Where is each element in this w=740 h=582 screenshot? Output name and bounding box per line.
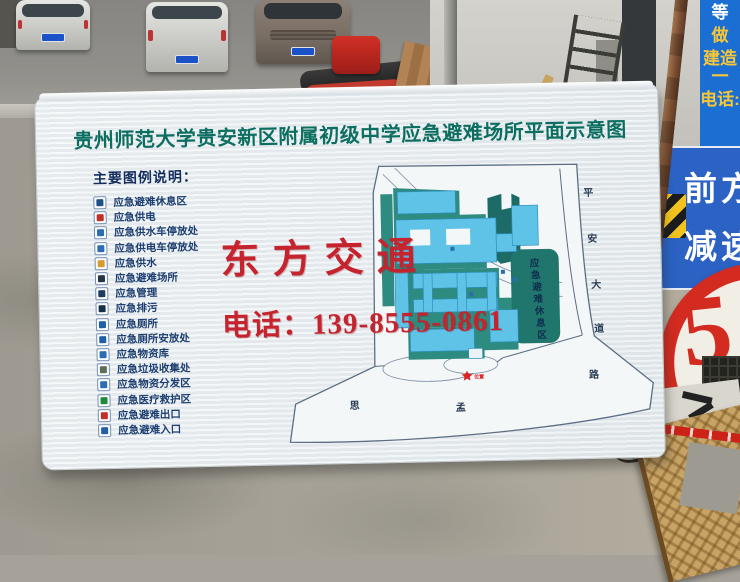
taillight-icon: [18, 20, 22, 29]
toilet-icon: [96, 318, 109, 331]
power-icon: [94, 211, 107, 224]
legend-pictogram: [100, 397, 107, 404]
faucet-icon: [95, 257, 108, 270]
legend-pictogram: [97, 245, 104, 252]
banner-text: 做: [712, 27, 729, 45]
toilet-place-icon: [96, 333, 109, 346]
medical-icon: [97, 394, 110, 407]
legend-label: 应急供水车停放处: [114, 224, 198, 241]
legend-label: 应急供电车停放处: [114, 239, 198, 256]
legend-label: 应急物资分发区: [117, 376, 191, 393]
legend-pictogram: [99, 306, 106, 313]
legend-label: 应急避难休息区: [113, 193, 187, 210]
legend-pictogram: [97, 230, 104, 237]
gate-building: [469, 348, 483, 358]
license-plate: [42, 34, 64, 41]
supplies-dist-icon: [97, 378, 110, 391]
svg-text:难: 难: [532, 293, 543, 305]
management-icon: [95, 287, 108, 300]
watermark-phone: 电话：139-8555-0861: [222, 297, 505, 345]
legend-label: 应急管理: [115, 285, 157, 301]
legend-label: 应急物资库: [116, 346, 169, 362]
watermark-company: 东方交通: [220, 224, 503, 286]
advertising-banner: 等做建造一电话:: [700, 0, 740, 154]
legend-pictogram: [96, 199, 103, 206]
legend-heading: 主要图例说明：: [93, 164, 283, 188]
legend-label: 应急避难出口: [118, 406, 181, 422]
legend-pictogram: [100, 366, 107, 373]
license-plate: [292, 48, 314, 55]
exit-icon: [98, 409, 111, 422]
road-right-char: 大: [591, 278, 601, 291]
sewage-icon: [95, 302, 108, 315]
road-right-char: 安: [587, 232, 597, 245]
banner-text: 电话:: [700, 91, 740, 109]
garbage-icon: [97, 363, 110, 376]
evacuation-map-signboard: 贵州师范大学贵安新区附属初级中学应急避难场所平面示意图 主要图例说明： 应急避难…: [34, 84, 666, 471]
legend-pictogram: [98, 290, 105, 297]
road-bottom-char: 思: [350, 400, 360, 412]
road-bottom-char: 路: [589, 368, 600, 381]
evacuation-icon: [95, 272, 108, 285]
red-watermark: 东方交通 电话：139-8555-0861: [220, 224, 504, 345]
shelter-rest-icon: [93, 196, 106, 209]
water-truck-icon: [94, 227, 107, 240]
taillight-icon: [148, 30, 153, 41]
legend-pictogram: [97, 214, 104, 221]
legend-pictogram: [98, 260, 105, 267]
svg-text:休: 休: [534, 305, 545, 317]
legend-pictogram: [99, 336, 106, 343]
legend-pictogram: [101, 427, 108, 434]
minivan-left: [16, 0, 90, 50]
svg-text:急: 急: [531, 269, 541, 281]
legend-row: 应急避难入口: [98, 419, 288, 438]
legend-label: 应急垃圾收集处: [117, 361, 191, 378]
traffic-sign-text: 前方: [684, 162, 740, 210]
entrance-icon: [98, 424, 111, 437]
legend-label: 应急排污: [115, 300, 157, 316]
legend-pictogram: [99, 321, 106, 328]
legend-label: 应急厕所安放处: [116, 330, 190, 347]
svg-text:避: 避: [532, 281, 542, 293]
supplies-store-icon: [96, 348, 109, 361]
banner-text: 建造一: [700, 50, 740, 86]
banner-text: 等: [712, 4, 729, 22]
legend-label: 应急供水: [115, 255, 157, 271]
svg-text:区: 区: [537, 330, 547, 341]
road-right-char: 道: [594, 322, 604, 335]
scooter-topbox: [332, 36, 380, 74]
legend-label: 应急避难入口: [118, 421, 181, 437]
legend-pictogram: [98, 275, 105, 282]
legend-label: 应急避难场所: [115, 270, 178, 286]
road-right-char: 平: [583, 187, 593, 199]
legend-pictogram: [101, 412, 108, 419]
legend-pictogram: [100, 381, 107, 388]
taillight-icon: [221, 30, 226, 41]
star-label: 位置: [474, 373, 484, 380]
svg-text:息: 息: [536, 317, 546, 329]
minivan-right: [146, 2, 228, 72]
legend-pictogram: [99, 351, 106, 358]
taillight-icon: [84, 20, 88, 29]
legend-label: 应急厕所: [116, 316, 158, 332]
legend-label: 应急供电: [114, 209, 156, 225]
svg-text:应: 应: [530, 257, 540, 269]
grey-tarp: [679, 442, 740, 514]
road-bottom-char: 孟: [456, 402, 466, 414]
legend-label: 应急医疗救护区: [117, 391, 191, 408]
power-truck-icon: [94, 242, 107, 255]
license-plate: [176, 56, 198, 63]
